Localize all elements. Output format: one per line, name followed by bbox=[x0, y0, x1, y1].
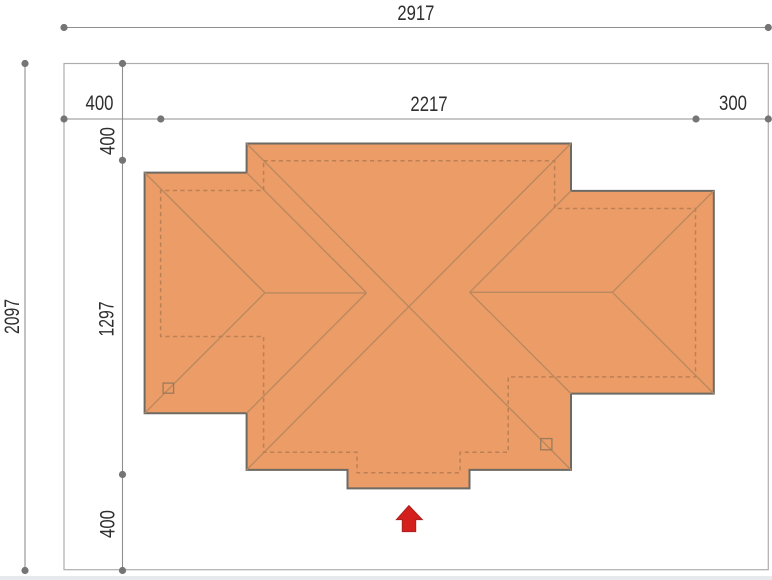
svg-text:400: 400 bbox=[86, 91, 114, 115]
svg-text:1297: 1297 bbox=[95, 302, 119, 337]
svg-text:2097: 2097 bbox=[0, 299, 24, 334]
svg-text:300: 300 bbox=[719, 91, 747, 115]
svg-text:2917: 2917 bbox=[397, 1, 434, 25]
svg-text:2217: 2217 bbox=[410, 92, 447, 116]
svg-text:400: 400 bbox=[95, 510, 119, 538]
svg-text:400: 400 bbox=[95, 127, 119, 155]
